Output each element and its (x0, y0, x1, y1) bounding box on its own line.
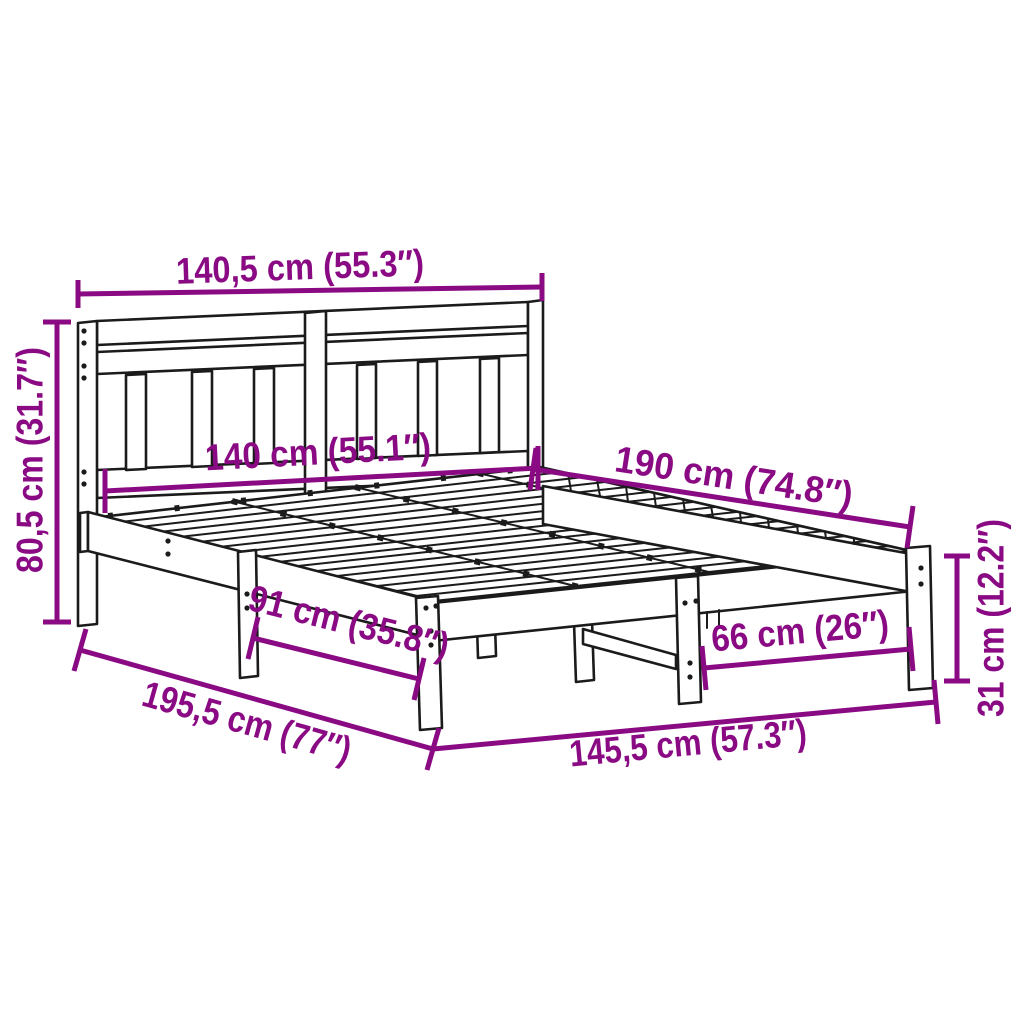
dim-total-width-label: 145,5 cm (57.3″) (568, 712, 809, 775)
diagram-canvas: 140,5 cm (55.3″) 80,5 cm (31.7″) 140 cm … (0, 0, 1024, 1024)
dim-base-height: 31 cm (12.2″) (944, 519, 1012, 717)
center-rail-beam (583, 629, 676, 669)
headboard-left-post (78, 321, 97, 626)
dim-total-length-label: 195,5 cm (77″) (138, 673, 356, 771)
dim-headboard-width-label: 140,5 cm (55.3″) (175, 242, 424, 292)
dim-front-leg-span: 66 cm (26″) (702, 603, 913, 690)
dim-headboard-height: 80,5 cm (31.7″) (10, 322, 72, 622)
center-front-leg (676, 576, 701, 704)
dim-headboard-width: 140,5 cm (55.3″) (78, 242, 542, 308)
dim-base-height-label: 31 cm (12.2″) (971, 519, 1012, 717)
headboard-center-stile (305, 311, 326, 505)
bed-drawing (78, 300, 933, 730)
dim-headboard-height-label: 80,5 cm (31.7″) (10, 347, 51, 573)
bed-frame-dimension-diagram: 140,5 cm (55.3″) 80,5 cm (31.7″) 140 cm … (0, 0, 1024, 1024)
